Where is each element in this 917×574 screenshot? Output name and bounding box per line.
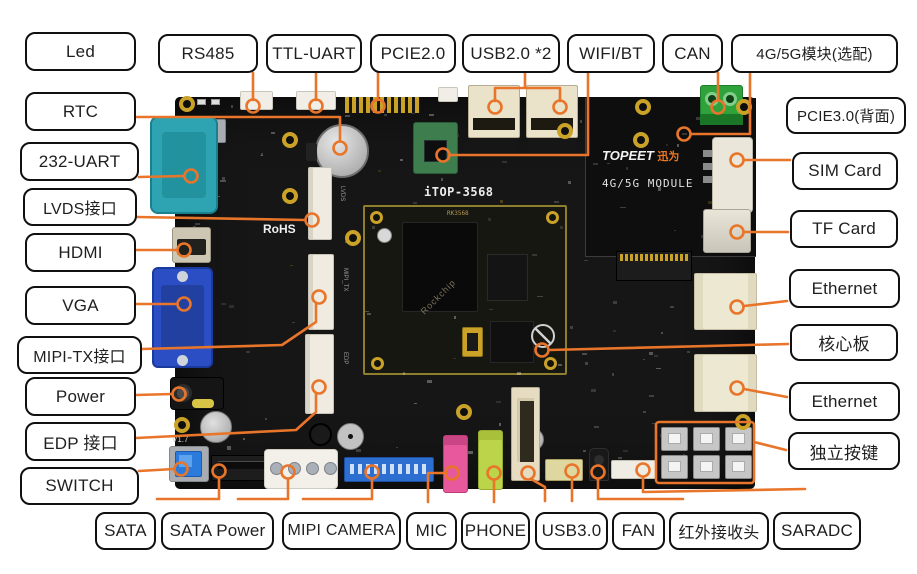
- ir-receiver-lens: [594, 455, 604, 465]
- wifi-chip: [424, 140, 447, 162]
- user-key-cap: [700, 461, 713, 472]
- module-corner-hole: [544, 357, 557, 370]
- tf-card-slot: [703, 209, 751, 253]
- mini-pcie-pins: [620, 254, 688, 261]
- board-version: V1.7: [172, 435, 188, 444]
- label-hdmi: HDMI: [25, 233, 136, 272]
- silkscreen-speck: [261, 153, 263, 156]
- silkscreen-speck: [246, 351, 250, 353]
- silkscreen-speck: [674, 230, 676, 231]
- user-key-cap: [732, 461, 745, 472]
- battery-clip: [306, 143, 317, 161]
- vga-screw-top: [177, 271, 188, 282]
- user-key-cap: [668, 433, 681, 444]
- ram-chip: [487, 254, 528, 301]
- label-ttl-uart: TTL-UART: [266, 34, 362, 73]
- sata-power-pin: [270, 462, 283, 475]
- mounting-hole: [633, 132, 649, 148]
- inductor: [309, 423, 332, 446]
- silkscreen-speck: [613, 330, 616, 332]
- silkscreen-speck: [583, 450, 586, 452]
- ethernet-port-1: [694, 273, 757, 330]
- label-saradc: SARADC: [773, 512, 861, 550]
- label-phone: PHONE: [461, 512, 530, 550]
- diagram-canvas: Rockchip: [0, 0, 917, 574]
- silkscreen-speck: [195, 223, 200, 225]
- silkscreen-speck: [271, 132, 275, 134]
- silkscreen-speck: [403, 372, 405, 375]
- label-pcie3: PCIE3.0(背面): [786, 97, 906, 134]
- saradc-connector: [611, 460, 656, 479]
- silkscreen-speck: [429, 114, 434, 116]
- silkscreen-speck: [593, 163, 598, 165]
- silkscreen-speck: [227, 446, 231, 450]
- silkscreen-speck: [554, 201, 559, 203]
- silkscreen-speck: [654, 355, 658, 357]
- label-ethernet-2: Ethernet: [789, 382, 900, 421]
- mounting-hole: [179, 96, 195, 112]
- mic-jack: [443, 435, 468, 493]
- mounting-hole: [635, 99, 651, 115]
- usb2-port-2-pins: [528, 138, 576, 151]
- label-232-uart: 232-UART: [20, 142, 139, 181]
- mounting-hole: [174, 417, 190, 433]
- fan-connector: [545, 459, 583, 481]
- silkscreen-speck: [558, 364, 562, 366]
- usb2-port-1-pins: [470, 138, 518, 151]
- silkscreen-speck: [584, 260, 588, 261]
- label-4g5g-module: 4G/5G模块(选配): [731, 34, 898, 73]
- lvds-connector: [308, 167, 332, 240]
- mounting-hole: [735, 414, 751, 430]
- silkscreen-speck: [229, 305, 234, 308]
- user-key-cap: [668, 461, 681, 472]
- emmc-chip: [490, 321, 534, 363]
- module-screw: [377, 228, 392, 243]
- edp-connector: [305, 334, 334, 414]
- label-usb2: USB2.0 *2: [462, 34, 560, 73]
- label-ir-receiver: 红外接收头: [669, 512, 769, 550]
- rs485-header: [240, 91, 273, 110]
- silkscreen-speck: [292, 322, 295, 323]
- led-1: [197, 99, 206, 105]
- rockchip-logo: [531, 324, 555, 348]
- label-can: CAN: [662, 34, 723, 73]
- label-core-board: 核心板: [790, 324, 898, 361]
- silkscreen-speck: [656, 368, 661, 369]
- silkscreen-speck: [453, 358, 456, 359]
- label-fan: FAN: [612, 512, 665, 550]
- silkscreen-speck: [670, 306, 674, 308]
- can-hole-2: [723, 92, 737, 106]
- silkscreen-speck: [384, 114, 387, 116]
- vga-screw-bottom: [177, 355, 188, 366]
- silkscreen-speck: [643, 411, 646, 413]
- silkscreen-speck: [652, 423, 656, 424]
- power-jack-barrel: [174, 384, 192, 402]
- label-vga: VGA: [25, 286, 136, 325]
- phone-jack: [478, 430, 503, 490]
- silkscreen-speck: [265, 418, 267, 420]
- silkscreen-speck: [427, 380, 432, 383]
- brand-en: TOPEET: [602, 148, 654, 163]
- silkscreen-speck: [661, 332, 663, 334]
- sim-card-holder: [712, 137, 753, 213]
- silkscreen-speck: [626, 167, 628, 170]
- silkscreen-speck: [372, 226, 375, 229]
- mipi-tx-silkscreen: MIPI_TX: [342, 268, 348, 291]
- module-corner-hole: [371, 357, 384, 370]
- module-zone-silkscreen: 4G/5G MODULE: [602, 177, 693, 190]
- label-pcie2: PCIE2.0: [370, 34, 456, 73]
- silkscreen-speck: [623, 450, 628, 452]
- led-2: [211, 99, 220, 105]
- can-hole-1: [705, 92, 719, 106]
- silkscreen-speck: [441, 178, 443, 181]
- silkscreen-speck: [413, 202, 417, 204]
- silkscreen-speck: [488, 218, 491, 221]
- label-sata: SATA: [95, 512, 156, 550]
- label-edp: EDP 接口: [25, 422, 136, 461]
- silkscreen-speck: [580, 120, 582, 123]
- silkscreen-speck: [468, 451, 473, 454]
- silkscreen-speck: [649, 395, 654, 397]
- silkscreen-speck: [243, 438, 245, 440]
- sata-power-pin: [324, 462, 337, 475]
- board-model-silkscreen: iTOP-3568: [424, 185, 494, 199]
- mounting-hole: [557, 123, 573, 139]
- silkscreen-speck: [499, 423, 501, 426]
- silkscreen-speck: [582, 353, 587, 355]
- mounting-hole: [282, 132, 298, 148]
- silkscreen-speck: [613, 301, 617, 304]
- soc-silkscreen: RK3568: [447, 210, 469, 217]
- vga-inner: [161, 285, 204, 349]
- can-terminal-base: [700, 114, 743, 125]
- silkscreen-speck: [414, 403, 417, 404]
- silkscreen-speck: [682, 133, 687, 135]
- mounting-hole: [456, 404, 472, 420]
- label-mipi-camera: MIPI CAMERA: [282, 512, 401, 550]
- pcie2-gold-fingers: [345, 97, 420, 113]
- silkscreen-speck: [378, 170, 381, 172]
- label-switch: SWITCH: [20, 467, 139, 505]
- sata-power-pin: [306, 462, 319, 475]
- edp-silkscreen: EDP: [342, 352, 348, 364]
- ttl-uart-header: [296, 91, 336, 110]
- silkscreen-speck: [221, 303, 226, 305]
- silkscreen-speck: [345, 115, 350, 117]
- silkscreen-speck: [594, 426, 599, 428]
- serial-232-inner: [162, 132, 206, 198]
- fuse: [192, 399, 214, 408]
- usb3-port-slot: [517, 398, 534, 462]
- user-key-cap: [732, 433, 745, 444]
- silkscreen-speck: [620, 207, 626, 208]
- silkscreen-speck: [677, 144, 679, 147]
- silkscreen-speck: [454, 316, 456, 319]
- rohs-marking: RoHS: [263, 222, 296, 236]
- label-user-keys: 独立按键: [788, 432, 900, 470]
- ethernet-port-2: [694, 354, 757, 412]
- silkscreen-speck: [687, 351, 690, 353]
- mipi-camera-pins: [350, 464, 428, 474]
- silkscreen-speck: [400, 159, 403, 161]
- buzzer-hole: [348, 434, 353, 439]
- power-switch-face: [179, 455, 192, 467]
- silkscreen-speck: [560, 226, 563, 229]
- label-led: Led: [25, 32, 136, 71]
- silkscreen-speck: [489, 309, 493, 310]
- mounting-hole: [345, 230, 361, 246]
- silkscreen-speck: [666, 144, 668, 146]
- lvds-silkscreen: LVDS: [339, 186, 345, 201]
- mounting-hole: [736, 99, 752, 115]
- usb2-port-1: [468, 85, 520, 138]
- silkscreen-speck: [532, 254, 537, 256]
- label-rtc: RTC: [25, 92, 136, 131]
- silkscreen-speck: [231, 105, 233, 108]
- silkscreen-speck: [367, 313, 371, 315]
- label-tf-card: TF Card: [790, 210, 898, 248]
- sata-power-pin: [288, 462, 301, 475]
- silkscreen-speck: [496, 401, 501, 403]
- label-ethernet-1: Ethernet: [789, 269, 900, 308]
- silkscreen-speck: [502, 161, 507, 163]
- pmic-chip-die: [467, 333, 478, 351]
- module-corner-hole: [370, 211, 383, 224]
- silkscreen-speck: [290, 265, 293, 266]
- label-usb3: USB3.0: [535, 512, 608, 550]
- module-corner-hole: [546, 211, 559, 224]
- silkscreen-speck: [585, 362, 588, 365]
- label-mic: MIC: [406, 512, 457, 550]
- silkscreen-speck: [356, 449, 361, 452]
- hdmi-slot: [177, 239, 206, 255]
- label-wifi-bt: WIFI/BT: [567, 34, 655, 73]
- usb2-port-1-slot: [473, 118, 515, 130]
- silkscreen-speck: [537, 296, 543, 297]
- silkscreen-speck: [218, 196, 220, 197]
- label-sata-power: SATA Power: [161, 512, 274, 550]
- silkscreen-speck: [591, 389, 596, 392]
- mipi-tx-connector: [308, 254, 334, 330]
- silkscreen-speck: [643, 359, 645, 360]
- silkscreen-speck: [570, 326, 573, 329]
- capacitor: [200, 411, 232, 443]
- antenna-header: [438, 87, 458, 102]
- user-key-cap: [700, 433, 713, 444]
- brand-cn: 迅为: [657, 151, 679, 163]
- mounting-hole: [282, 188, 298, 204]
- silkscreen-speck: [649, 352, 653, 355]
- label-lvds: LVDS接口: [23, 188, 137, 226]
- label-rs485: RS485: [158, 34, 258, 73]
- silkscreen-speck: [517, 372, 521, 375]
- silkscreen-speck: [220, 180, 226, 182]
- label-sim-card: SIM Card: [792, 152, 898, 190]
- brand-logo: TOPEET 迅为: [602, 148, 679, 164]
- silkscreen-speck: [396, 447, 398, 448]
- label-power: Power: [25, 377, 136, 416]
- silkscreen-speck: [568, 181, 571, 184]
- label-mipi-tx: MIPI-TX接口: [17, 336, 142, 374]
- silkscreen-speck: [500, 200, 503, 203]
- silkscreen-speck: [612, 373, 614, 376]
